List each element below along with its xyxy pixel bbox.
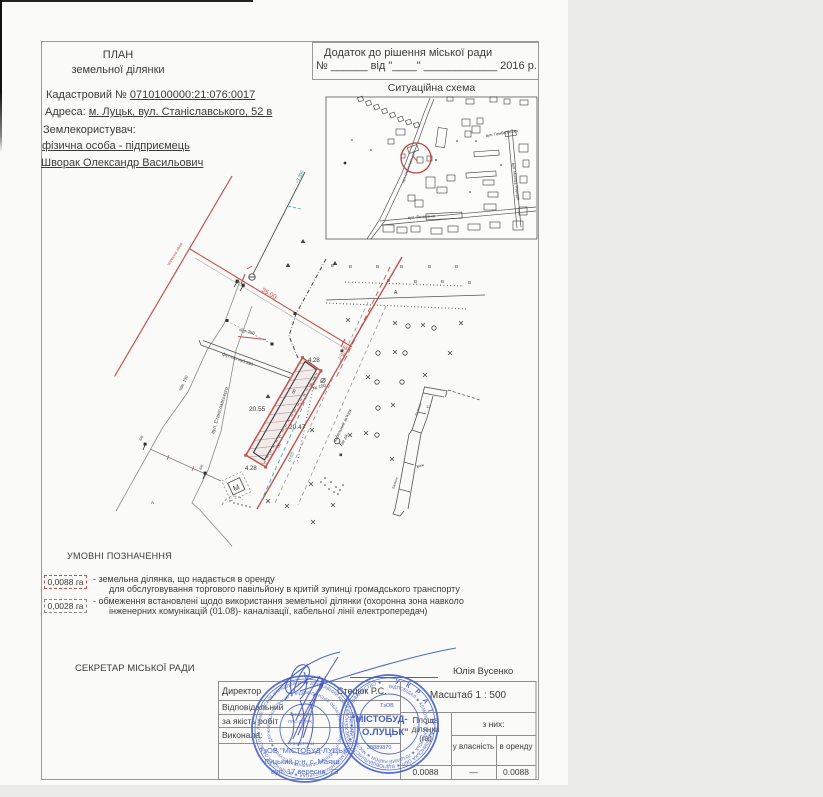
svg-text:В: В [414,279,417,284]
svg-text:б/б: б/б [138,435,144,441]
svg-text:В: В [376,264,379,269]
svg-text:В: В [428,264,431,269]
svg-text:В: В [468,280,471,285]
svg-text:ТзОВ: ТзОВ [380,703,394,709]
svg-text:Балкони: Балкони [414,402,422,416]
svg-text:20.47: 20.47 [289,424,306,431]
svg-text:4.28: 4.28 [245,466,257,472]
svg-text:В: В [349,264,352,269]
svg-text:"МІСТОБУД-: "МІСТОБУД- [351,714,408,725]
svg-text:В: В [400,264,403,269]
svg-text:б/б: б/б [198,464,204,470]
svg-text:35.00: 35.00 [260,287,278,302]
svg-text:12: 12 [426,404,431,409]
svg-text:20.55: 20.55 [249,406,266,413]
svg-text:Луцький р-н, с. Маяки: Луцький р-н, с. Маяки [264,757,340,766]
svg-text:вул. Станіславського: вул. Станіславського [210,386,230,434]
svg-text:А: А [394,290,398,296]
svg-text:ст.65: ст.65 [286,451,295,463]
svg-text:ТзОВ "МІСТОБУД-ЛУЦЬК": ТзОВ "МІСТОБУД-ЛУЦЬК" [259,746,350,755]
svg-text:О.ЛУЦЬК": О.ЛУЦЬК" [362,727,409,738]
svg-text:В: В [387,278,390,283]
svg-text:38889870: 38889870 [367,745,391,751]
svg-text:вул. 17 вересня, 73: вул. 17 вересня, 73 [271,767,338,776]
svg-text:В: В [441,279,444,284]
svg-text:+3.300: +3.300 [294,169,305,184]
svg-text:4.28: 4.28 [308,358,320,364]
svg-text:Балкон: Балкон [391,477,399,489]
svg-text:В: В [455,264,458,269]
svg-text:М: М [232,482,241,493]
svg-text:чав. 150: чав. 150 [177,374,189,392]
svg-text:А: А [151,500,154,505]
svg-text:Веж: Веж [416,462,425,469]
